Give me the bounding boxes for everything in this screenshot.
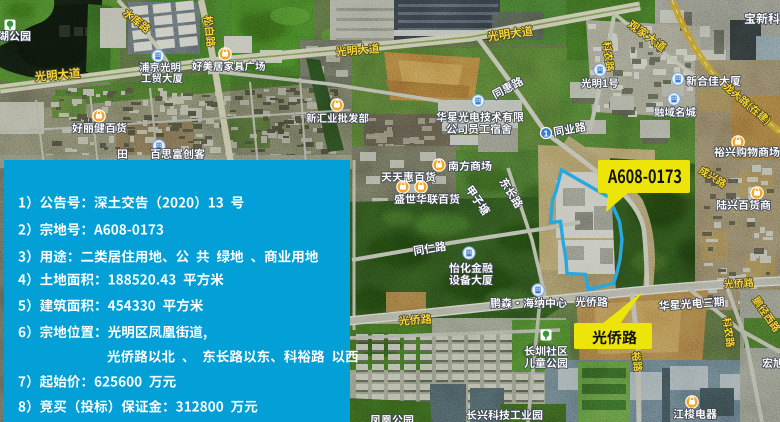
svg-text:1: 1 bbox=[544, 129, 549, 139]
